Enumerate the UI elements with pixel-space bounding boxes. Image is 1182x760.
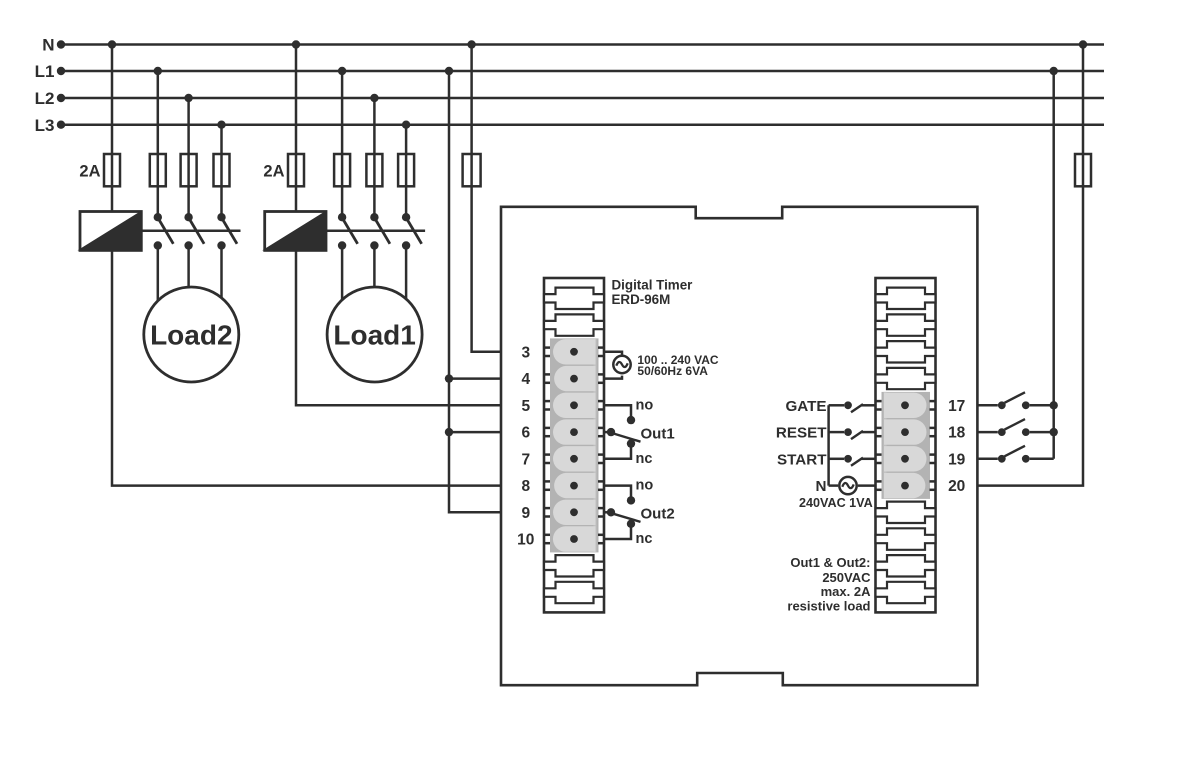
- svg-text:Digital Timer: Digital Timer: [612, 277, 694, 292]
- svg-text:10: 10: [517, 532, 534, 549]
- svg-text:50/60Hz 6VA: 50/60Hz 6VA: [637, 364, 708, 378]
- svg-text:Out2: Out2: [641, 506, 675, 523]
- svg-text:18: 18: [948, 425, 966, 442]
- svg-text:9: 9: [521, 505, 530, 522]
- svg-text:no: no: [636, 397, 654, 413]
- svg-text:3: 3: [521, 344, 530, 361]
- svg-text:240VAC 1VA: 240VAC 1VA: [799, 496, 873, 510]
- svg-text:7: 7: [521, 451, 530, 468]
- svg-text:Out1 & Out2:: Out1 & Out2:: [790, 555, 870, 570]
- svg-text:nc: nc: [636, 531, 653, 547]
- svg-text:no: no: [636, 478, 654, 494]
- svg-text:resistive load: resistive load: [787, 598, 870, 613]
- svg-text:ERD-96M: ERD-96M: [612, 292, 671, 307]
- svg-text:4: 4: [521, 371, 530, 388]
- svg-text:Out1: Out1: [641, 425, 675, 442]
- svg-text:L1: L1: [35, 62, 55, 81]
- svg-text:20: 20: [948, 478, 965, 495]
- svg-text:GATE: GATE: [785, 398, 826, 415]
- svg-text:N: N: [816, 478, 827, 495]
- svg-text:Load1: Load1: [333, 319, 415, 350]
- svg-text:250VAC: 250VAC: [822, 570, 871, 585]
- svg-text:17: 17: [948, 398, 965, 415]
- svg-text:19: 19: [948, 451, 966, 468]
- svg-text:5: 5: [521, 398, 530, 415]
- svg-text:2A: 2A: [79, 162, 100, 180]
- svg-text:RESET: RESET: [776, 425, 827, 442]
- svg-text:2A: 2A: [263, 162, 284, 180]
- svg-text:L2: L2: [35, 89, 55, 108]
- svg-text:6: 6: [521, 425, 530, 442]
- svg-text:START: START: [777, 451, 827, 468]
- svg-text:max. 2A: max. 2A: [821, 584, 871, 599]
- svg-text:N: N: [42, 36, 54, 55]
- svg-text:Load2: Load2: [150, 319, 232, 350]
- svg-text:nc: nc: [636, 451, 653, 467]
- svg-text:L3: L3: [35, 116, 55, 135]
- svg-text:8: 8: [521, 478, 530, 495]
